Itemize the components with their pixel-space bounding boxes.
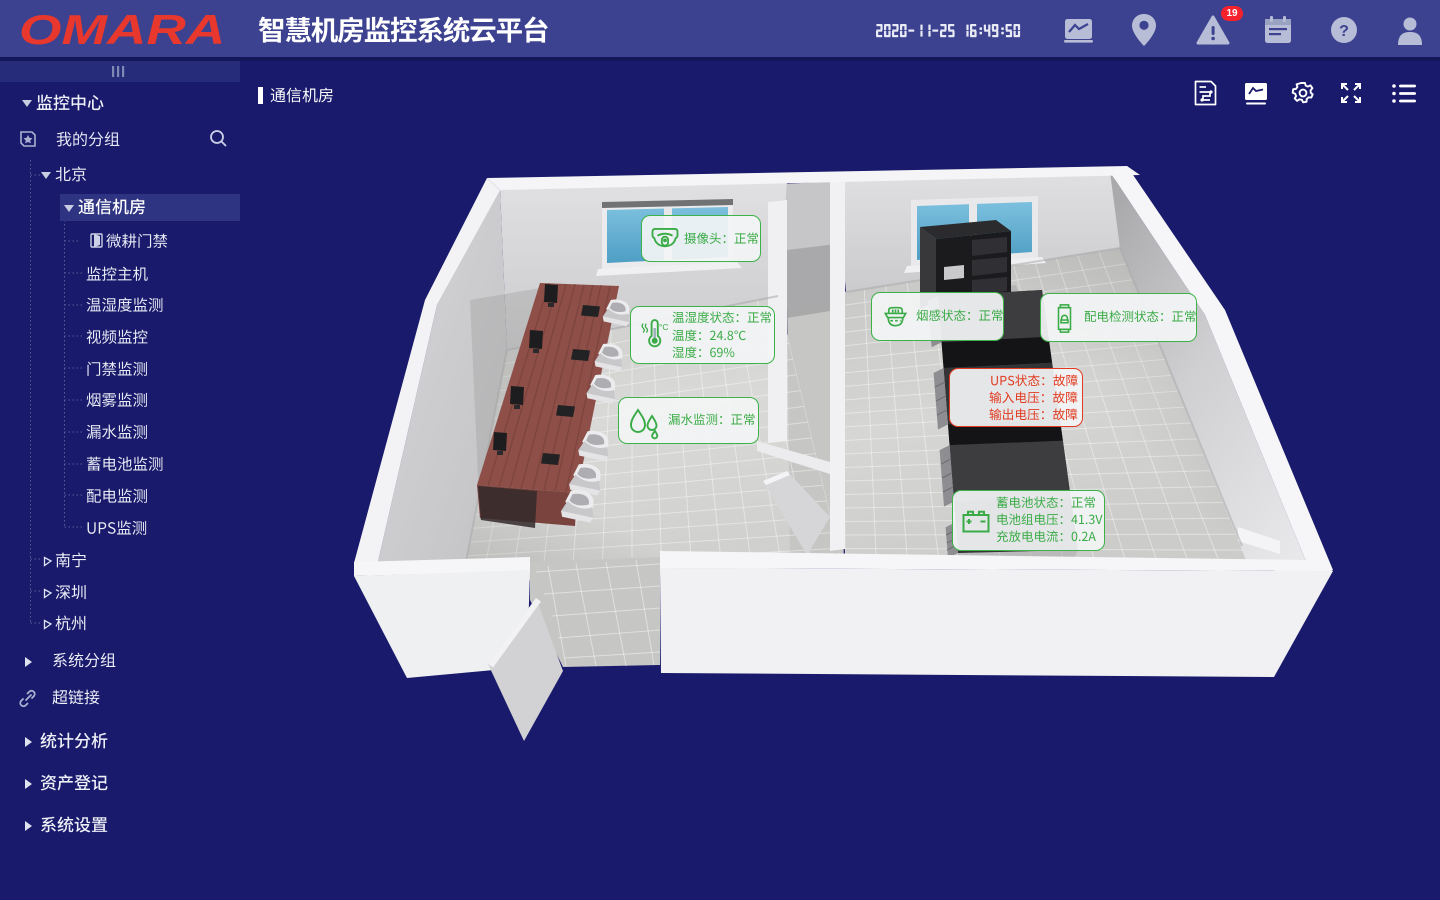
svg-text:°C: °C (659, 322, 668, 332)
svg-text:?: ? (1339, 23, 1349, 40)
